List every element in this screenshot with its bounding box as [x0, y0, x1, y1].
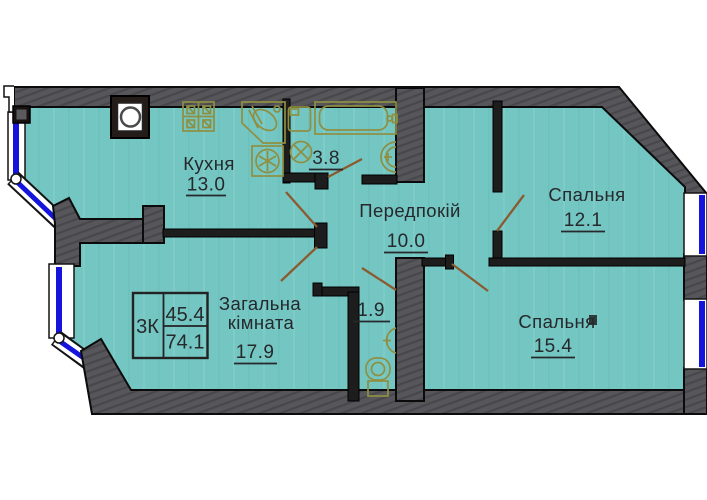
- stove-icon: [183, 102, 214, 131]
- window-left-lower: [49, 264, 74, 338]
- bedroom-large-area: 15.4: [534, 336, 573, 357]
- total-area-value: 74.1: [166, 332, 205, 354]
- window-glazing: [56, 267, 62, 336]
- bedroom-small-name: Спальня: [548, 184, 625, 205]
- bedroom-large-name: Спальня: [518, 311, 595, 332]
- wall-right-lower-pier: [684, 368, 707, 414]
- bedroom-small-area: 12.1: [564, 210, 603, 231]
- kitchen-area: 13.0: [187, 175, 226, 196]
- living-room-area: 17.9: [236, 342, 275, 363]
- bathroom-area: 3.8: [312, 148, 340, 169]
- window-joint: [54, 333, 64, 343]
- window-right-upper: [684, 193, 707, 256]
- vent-shaft-icon: [111, 96, 149, 138]
- wall-kitchen-partition: [163, 229, 318, 237]
- wall-wc-bedroom: [396, 258, 424, 401]
- wall-bedroom1-west-upper: [493, 101, 502, 192]
- wall-bathroom-step: [315, 173, 328, 189]
- bathroom-label: 3.8: [309, 148, 343, 170]
- window-glazing: [699, 301, 705, 367]
- hallway-name: Передпокій: [359, 200, 460, 221]
- window-joint: [11, 174, 21, 184]
- hallway-area: 10.0: [387, 231, 426, 252]
- floor-plan: 3К 45.4 74.1 Кухня 13.0 Передпокій 10.0 …: [0, 0, 707, 500]
- living-room-name-line1: Загальна: [219, 293, 302, 314]
- wall-bathroom-south-right: [362, 175, 397, 184]
- window-glazing: [699, 195, 705, 254]
- apartment-type: 3К: [136, 316, 159, 338]
- wc-area: 1.9: [357, 300, 385, 321]
- wall-step-block: [143, 206, 164, 243]
- wall-living-wc-step: [313, 283, 322, 296]
- kitchen-name: Кухня: [183, 153, 235, 174]
- wall-right-middle-pier: [684, 254, 707, 300]
- living-area-value: 45.4: [166, 304, 205, 326]
- wall-bathroom-hallway: [396, 88, 424, 182]
- floor-plan-stage: 3К 45.4 74.1 Кухня 13.0 Передпокій 10.0 …: [0, 0, 707, 500]
- living-room-name-line2: кімната: [228, 312, 295, 333]
- wall-bedrooms-divider: [489, 258, 685, 266]
- wall-divider-cap: [446, 255, 454, 269]
- corner-block: [13, 106, 30, 123]
- window-glazing: [13, 115, 19, 177]
- window-right-lower: [684, 299, 707, 369]
- wc-label: 1.9: [353, 300, 390, 322]
